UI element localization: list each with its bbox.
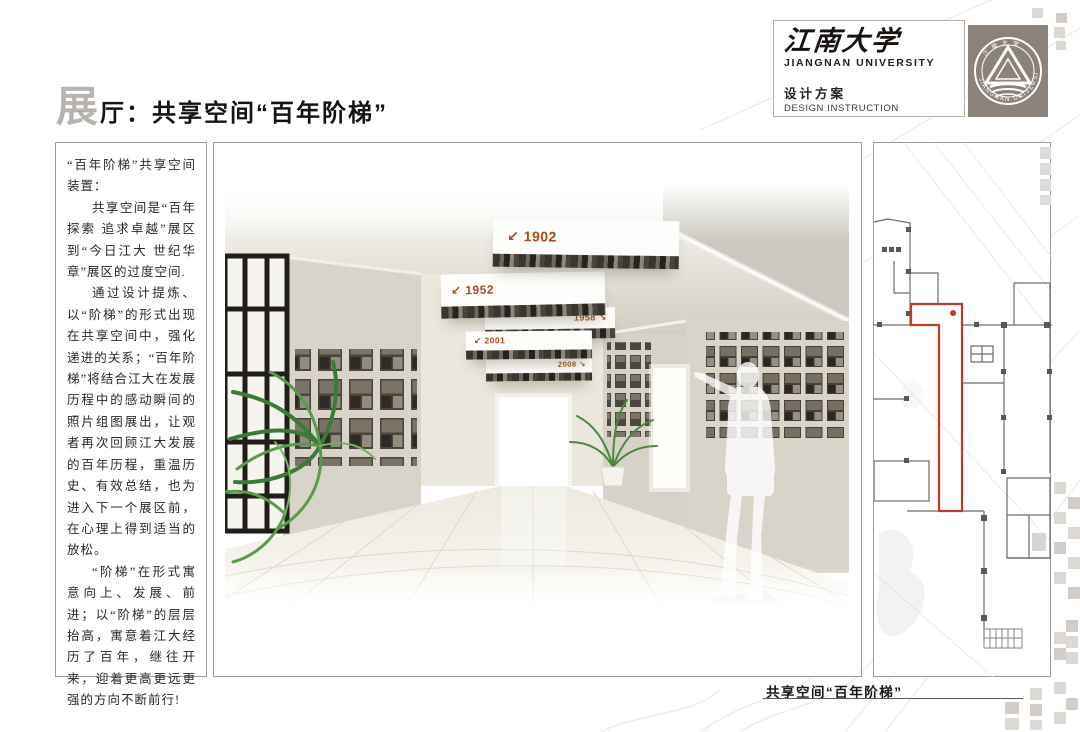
floor-plan-panel xyxy=(873,142,1051,677)
plan-watermark xyxy=(876,381,924,637)
center-doorway xyxy=(495,393,572,492)
floor-reflection xyxy=(501,486,566,566)
university-seal-icon: JIANGNAN UNIVERSITY 江南大学 xyxy=(968,25,1048,117)
rendering-frame: ↙ 1902 ↙ 1952 1958 ↘ ↙ 2001 2008 ↘ xyxy=(213,142,862,677)
header-title-block: 江南大学 JIANGNAN UNIVERSITY 设计方案 DESIGN INS… xyxy=(773,20,965,117)
photo-strip xyxy=(466,349,592,359)
photo-strip xyxy=(493,254,679,270)
title-text: 厅：共享空间“百年阶梯” xyxy=(100,93,388,128)
year-label: 2008 ↘ xyxy=(558,360,586,369)
ceiling-panel-1952: ↙ 1952 xyxy=(441,271,606,318)
description-paragraph: 共享空间是“百年探索 追求卓越”展区到“今日江大 世纪华章”展区的过度空间. xyxy=(67,198,196,284)
floor-plan-drawing xyxy=(874,143,1052,678)
ceiling-panel-1902: ↙ 1902 xyxy=(493,219,680,270)
doc-type-en: DESIGN INSTRUCTION xyxy=(784,103,954,114)
badge-arc-text: JIANGNAN UNIVERSITY xyxy=(968,25,1040,103)
plan-highlight-corridor xyxy=(911,304,962,511)
university-calligraphy: 江南大学 xyxy=(782,27,955,57)
description-paragraph: “百年阶梯”共享空间装置： xyxy=(67,155,196,198)
photo-strip xyxy=(486,373,592,382)
left-photo-grid xyxy=(295,349,417,466)
footer-underline xyxy=(763,698,1023,699)
plan-stair-grid xyxy=(984,629,1022,648)
bottom-fade xyxy=(225,566,849,609)
university-name-en: JIANGNAN UNIVERSITY xyxy=(784,57,954,69)
description-paragraph: “阶梯”在形式寓意向上、发展、前进；以“阶梯”的层层抬高，寓意着江大经历了百年，… xyxy=(67,562,196,712)
year-label: ↙ 2001 xyxy=(474,335,506,346)
year-label: ↙ 1902 xyxy=(507,228,557,246)
description-paragraph: 通过设计提炼、以“阶梯”的形式出现在共享空间中，强化递进的关系；“百年阶梯”将结… xyxy=(67,283,196,561)
mid-photo-grid xyxy=(607,342,651,437)
presentation-board: 江南大学 JIANGNAN UNIVERSITY 设计方案 DESIGN INS… xyxy=(0,0,1080,732)
ceiling-panel-2008: 2008 ↘ xyxy=(486,357,592,382)
page-title: 展 厅：共享空间“百年阶梯” xyxy=(56,86,388,128)
year-label: ↙ 1952 xyxy=(451,283,494,298)
exhibition-rendering: ↙ 1902 ↙ 1952 1958 ↘ ↙ 2001 2008 ↘ xyxy=(225,184,849,609)
university-logo-badge: JIANGNAN UNIVERSITY 江南大学 xyxy=(968,25,1048,117)
plan-pixel-squares xyxy=(1040,147,1051,205)
plan-filled-block xyxy=(1032,533,1046,551)
description-panel: “百年阶梯”共享空间装置： 共享空间是“百年探索 追求卓越”展区到“今日江大 世… xyxy=(55,142,207,677)
title-lead-char: 展 xyxy=(56,86,98,128)
ceiling-panel-2001: ↙ 2001 xyxy=(466,330,592,359)
doc-type-zh: 设计方案 xyxy=(784,83,954,102)
side-doorway xyxy=(649,364,690,492)
